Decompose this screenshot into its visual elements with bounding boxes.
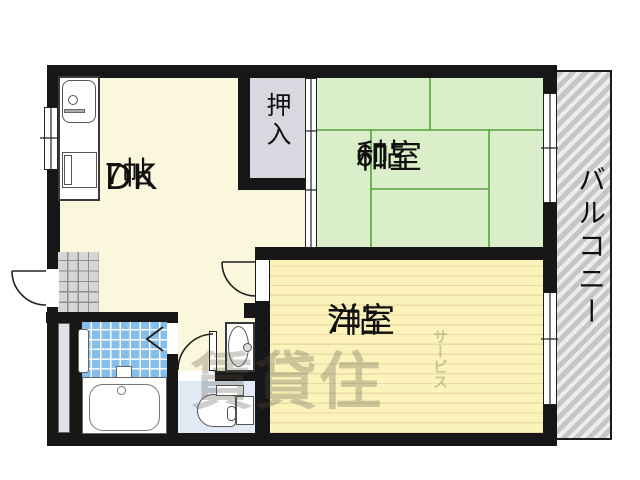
shower-column [78, 329, 89, 373]
wall-bottom [47, 433, 557, 446]
wall-oshiire-left [238, 65, 250, 190]
faucet-handle [64, 109, 85, 113]
dk-size: 7帖 [105, 157, 153, 190]
yoshitsu-door-opening [256, 260, 269, 301]
floor-plan: DK 7帖 和室 6帖 洋室 7帖 押入 バルコニー 賃貸住 サービス [0, 0, 640, 480]
yoshitsu-balcony-window [543, 292, 557, 405]
oshiire-label: 押入 [259, 92, 295, 150]
entry-door-opening [46, 269, 59, 307]
wall-stub [244, 303, 270, 318]
toilet-lid [216, 385, 244, 396]
washitsu-balcony-window [543, 93, 557, 203]
wall-mid-divider [255, 247, 543, 260]
toilet-door-opening [178, 371, 215, 381]
kitchen-window [44, 107, 58, 170]
bath-step [116, 366, 132, 378]
fusuma-sliding-door [305, 78, 317, 248]
wall-top [47, 65, 557, 78]
yoshitsu-size: 7帖 [327, 303, 378, 339]
faucet-icon [68, 95, 78, 105]
toilet-tank [236, 396, 254, 425]
entry-door-arc [12, 271, 46, 305]
wall-oshiire-bottom [238, 178, 306, 190]
yoshitsu-wood-floor [255, 247, 543, 433]
washbasin-faucet-icon [243, 343, 252, 352]
toilet-seat-detail [227, 406, 236, 421]
toilet-door-leaf [209, 331, 217, 371]
bathtub-drain-icon [117, 386, 126, 395]
genkan-entry-tile [58, 252, 99, 312]
kitchen-sink [62, 80, 96, 123]
washitsu-tatami-floor [305, 78, 543, 247]
pipe-space [58, 323, 70, 433]
washitsu-size: 6帖 [356, 139, 404, 172]
bathroom-door-opening [167, 323, 178, 354]
kitchen-cabinet-panel [64, 155, 72, 185]
balcony-label: バルコニー [570, 165, 610, 330]
